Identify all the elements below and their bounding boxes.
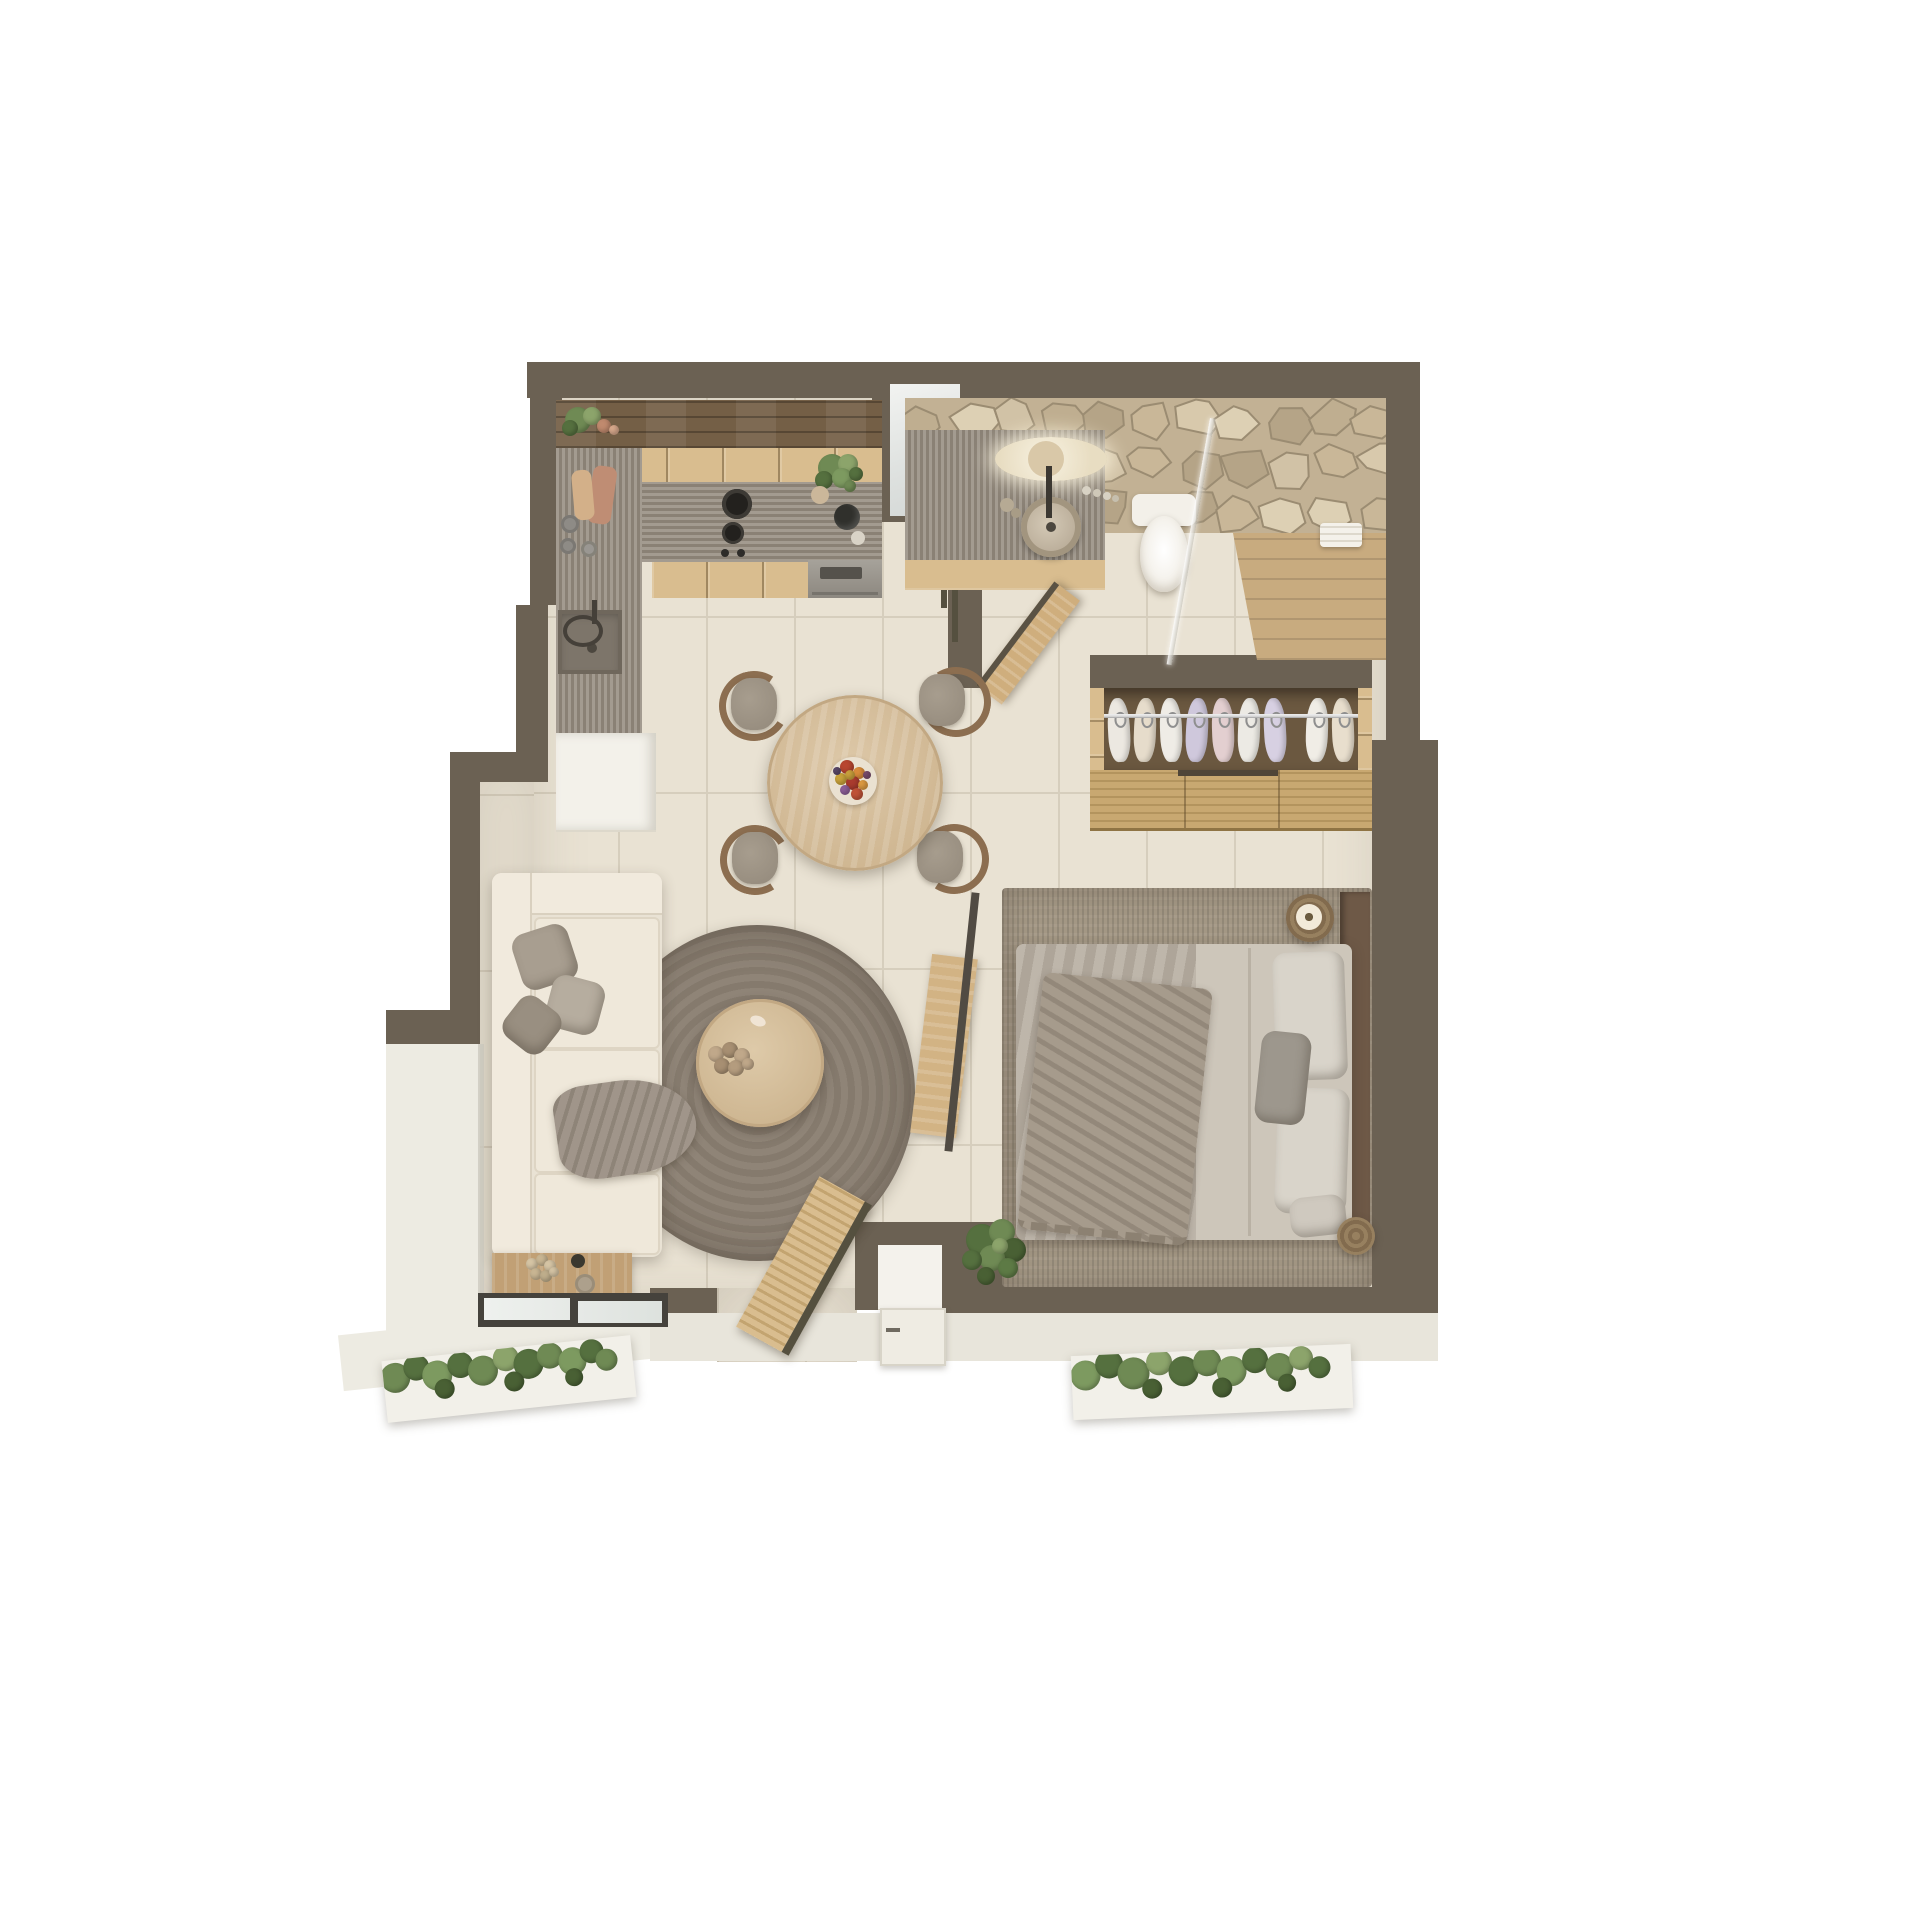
dining-chair-top-left bbox=[717, 669, 787, 739]
hanging-garment bbox=[1106, 697, 1131, 762]
cluster-dot bbox=[1242, 1347, 1269, 1374]
floor-plan-canvas bbox=[0, 0, 1908, 1908]
bed-duvet-crease bbox=[1248, 948, 1251, 1236]
hob-burner-large bbox=[722, 489, 752, 519]
bed-accent-pillow bbox=[1253, 1030, 1312, 1127]
hanging-garment bbox=[1133, 698, 1157, 763]
cluster-dot bbox=[851, 788, 863, 800]
oven-display bbox=[820, 567, 862, 579]
cluster-dot bbox=[845, 770, 855, 780]
glass-wall-left bbox=[478, 1044, 484, 1295]
cluster-dot bbox=[742, 1058, 754, 1070]
cluster-dot bbox=[594, 1348, 618, 1372]
stump-flower bbox=[1296, 904, 1322, 930]
entry-niche-floor bbox=[878, 1245, 942, 1309]
kitchen-jar-1 bbox=[561, 515, 579, 533]
sofa-back-left bbox=[492, 873, 532, 1257]
planter-box-right bbox=[1071, 1344, 1354, 1420]
cluster-dot bbox=[998, 1258, 1018, 1278]
wall-left-c bbox=[450, 782, 480, 1010]
kitchen-shelf-plant bbox=[564, 408, 624, 444]
cluster-dot bbox=[1308, 1356, 1331, 1379]
wall-right-upper bbox=[1386, 362, 1420, 740]
cluster-dot bbox=[849, 467, 863, 481]
fruit-plate bbox=[829, 757, 877, 805]
hanging-garment bbox=[1237, 698, 1261, 763]
kitchen-jar-2 bbox=[560, 538, 576, 554]
console-dark-pot bbox=[571, 1254, 585, 1268]
chair-cushion bbox=[731, 678, 777, 730]
hanging-garment bbox=[1262, 697, 1287, 762]
kitchen-jar-3 bbox=[581, 541, 597, 557]
toiletry-4 bbox=[1112, 495, 1119, 502]
stump-side-table-bottom bbox=[1337, 1217, 1375, 1255]
cluster-dot bbox=[863, 771, 871, 779]
cluster-dot bbox=[1142, 1378, 1163, 1399]
stone-tile bbox=[1259, 498, 1306, 533]
cluster-dot bbox=[562, 420, 578, 436]
bedroom-potted-plant bbox=[962, 1222, 1042, 1314]
cluster-dot bbox=[992, 1238, 1008, 1254]
kitchen-dark-bowl bbox=[834, 504, 860, 530]
bed-throw-fringed bbox=[1017, 972, 1213, 1246]
console-twig-decor bbox=[524, 1256, 564, 1286]
chair-cushion bbox=[919, 674, 965, 726]
wardrobe-rail bbox=[1104, 714, 1358, 718]
hanging-garment bbox=[1184, 697, 1209, 762]
wardrobe-handle-groove bbox=[1178, 770, 1278, 776]
chair-cushion bbox=[732, 832, 778, 884]
wall-right-lower bbox=[1372, 740, 1438, 1313]
shower-floor bbox=[1233, 533, 1386, 660]
cluster-dot bbox=[833, 767, 841, 775]
cluster-dot bbox=[977, 1267, 995, 1285]
cutting-board-2 bbox=[571, 469, 595, 521]
glass-pane-left bbox=[484, 1298, 570, 1320]
cluster-dot bbox=[434, 1378, 456, 1400]
cluster-dot bbox=[844, 480, 856, 492]
hanging-garment bbox=[1305, 698, 1329, 763]
kitchen-faucet-coil bbox=[563, 615, 603, 647]
wall-alcove-step bbox=[450, 752, 548, 782]
dining-chair-bottom-left bbox=[718, 823, 788, 893]
entry-door-leaf bbox=[880, 1308, 946, 1366]
kitchen-faucet-bar bbox=[592, 600, 597, 624]
wardrobe-garments bbox=[1090, 688, 1372, 770]
entry-jamb-left bbox=[855, 1222, 878, 1310]
cluster-dot bbox=[549, 1267, 559, 1277]
cluster-dot bbox=[840, 785, 850, 795]
cluster-dot bbox=[1278, 1373, 1297, 1392]
hob-knob-2 bbox=[737, 549, 745, 557]
sofa-seat-cushion-3 bbox=[534, 1173, 660, 1255]
kitchen-lower-cabinets bbox=[652, 562, 810, 598]
wardrobe-divider-2 bbox=[1278, 770, 1280, 828]
hanging-garment bbox=[1211, 698, 1235, 763]
oven-handle bbox=[812, 592, 878, 595]
pebble-2 bbox=[1011, 508, 1021, 518]
bath-faucet bbox=[1046, 466, 1052, 518]
cluster-dot bbox=[962, 1250, 982, 1270]
chair-cushion bbox=[917, 831, 963, 883]
cluster-dot bbox=[609, 425, 619, 435]
console-tray bbox=[575, 1274, 595, 1294]
kitchen-beige-pot bbox=[811, 486, 829, 504]
glass-pane-right bbox=[578, 1301, 662, 1323]
hanging-garment bbox=[1331, 698, 1355, 763]
toiletry-3 bbox=[1103, 492, 1111, 500]
entry-door-handle bbox=[886, 1328, 900, 1332]
cluster-dot bbox=[1212, 1377, 1233, 1398]
wall-left-b bbox=[516, 605, 548, 752]
kitchen-tall-cabinet bbox=[556, 733, 656, 832]
kitchen-white-ball bbox=[851, 531, 865, 545]
wardrobe-divider-1 bbox=[1184, 770, 1186, 828]
wall-bottom-right bbox=[1040, 1287, 1438, 1313]
sink-drain-bath bbox=[1046, 522, 1056, 532]
shower-towel bbox=[1320, 523, 1362, 547]
terrace-left-slab bbox=[386, 1044, 480, 1336]
toiletry-1 bbox=[1082, 486, 1091, 495]
vanity-cabinet bbox=[905, 560, 1105, 590]
toiletry-2 bbox=[1093, 489, 1101, 497]
coffee-table-dried-bouquet bbox=[706, 1044, 758, 1078]
hob-knob-1 bbox=[721, 549, 729, 557]
wall-step-2 bbox=[386, 1010, 480, 1044]
hanging-garment bbox=[1159, 698, 1183, 763]
hob-burner-small bbox=[722, 522, 744, 544]
wardrobe-front-slats bbox=[1090, 770, 1372, 831]
